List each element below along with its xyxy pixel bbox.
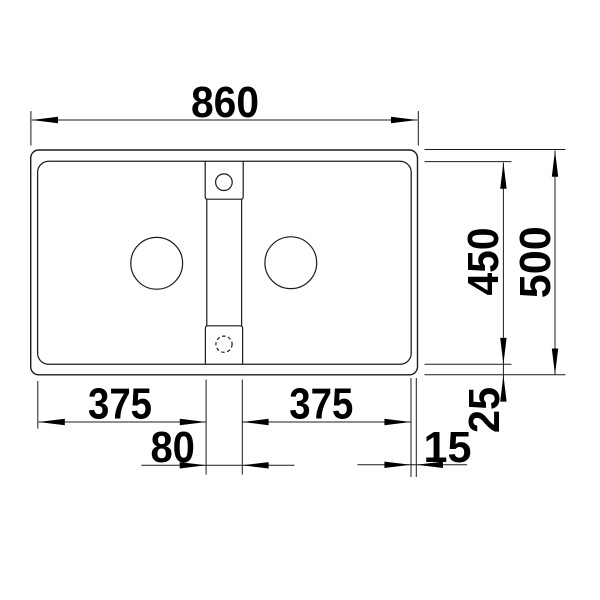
svg-text:860: 860 — [191, 79, 259, 127]
svg-text:500: 500 — [512, 226, 560, 298]
svg-text:375: 375 — [88, 381, 152, 429]
svg-text:80: 80 — [150, 424, 195, 472]
svg-text:450: 450 — [460, 228, 508, 296]
svg-text:375: 375 — [289, 381, 353, 429]
svg-text:15: 15 — [424, 424, 472, 472]
